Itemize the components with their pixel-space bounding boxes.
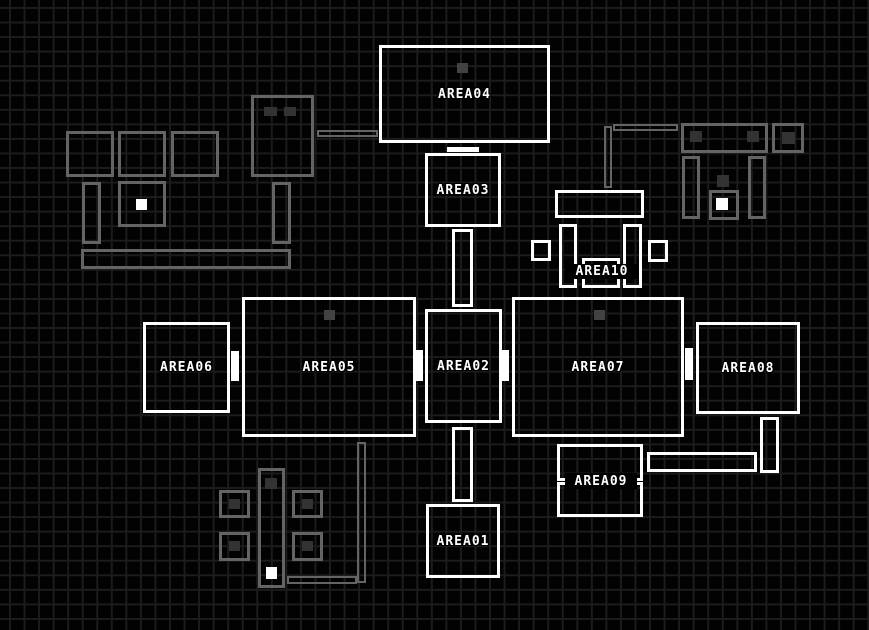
furniture-table: [118, 131, 166, 177]
door-area06-area05: [231, 351, 239, 381]
area10-side-table-left: [531, 240, 551, 261]
furniture-counter: [81, 249, 291, 269]
room-label-area04: AREA04: [438, 87, 491, 102]
room-label-area06: AREA06: [160, 360, 213, 375]
room-area01[interactable]: AREA01: [426, 504, 500, 578]
room-label-area05: AREA05: [303, 360, 356, 375]
furniture-chair: [219, 532, 250, 561]
room-area06[interactable]: AREA06: [143, 322, 230, 413]
prop-marker-icon: [690, 131, 702, 142]
hallway-area08-south: [760, 417, 779, 473]
prop-marker-icon: [717, 175, 729, 187]
room-label-area02: AREA02: [437, 359, 490, 374]
furniture-bench-right: [272, 182, 291, 244]
room-label-area01: AREA01: [437, 534, 490, 549]
camera-marker-icon: [457, 63, 468, 73]
wall-segment-horizontal: [287, 576, 357, 584]
room-area03[interactable]: AREA03: [425, 153, 501, 227]
prop-marker-icon: [229, 541, 240, 551]
furniture-table: [66, 131, 114, 177]
furniture-long-table: [258, 468, 285, 588]
wall-connector-right: [613, 124, 678, 131]
furniture-cabinet-small: [772, 123, 804, 153]
furniture-chair: [292, 532, 323, 561]
room-area05[interactable]: AREA05: [242, 297, 416, 437]
highlight-dot-icon: [266, 567, 277, 579]
room-area07[interactable]: AREA07: [512, 297, 684, 437]
furniture-counter-long: [681, 123, 768, 153]
area10-stage[interactable]: [555, 190, 644, 218]
door-area07-area08: [685, 348, 693, 380]
prop-marker-icon: [265, 478, 277, 489]
highlight-dot-icon: [136, 199, 147, 210]
room-label-area10: AREA10: [576, 264, 629, 279]
prop-marker-icon: [747, 131, 759, 142]
furniture-shelf-left: [682, 156, 700, 219]
prop-marker-icon: [284, 107, 296, 116]
prop-marker-icon: [782, 132, 795, 144]
highlight-dot-icon: [716, 198, 728, 210]
prop-marker-icon: [229, 499, 240, 509]
room-label-area09-box[interactable]: AREA09: [565, 473, 637, 489]
wall-connector-left: [317, 130, 378, 137]
door-area02-area07: [502, 350, 509, 381]
room-label-area08: AREA08: [722, 361, 775, 376]
furniture-table-highlight: [709, 190, 739, 220]
room-area04[interactable]: AREA04: [379, 45, 550, 143]
wall-connector-right-vertical: [604, 126, 612, 188]
hallway-area02-area01: [452, 427, 473, 502]
camera-marker-icon: [324, 310, 335, 320]
door-area05-area02: [415, 350, 423, 381]
furniture-shelf-right: [748, 156, 766, 219]
room-area02[interactable]: AREA02: [425, 309, 502, 423]
area10-side-table-right: [648, 240, 668, 262]
furniture-table-highlight: [118, 181, 166, 227]
door-area04-area03: [447, 147, 479, 152]
camera-marker-icon: [594, 310, 605, 320]
furniture-cabinet: [251, 95, 314, 177]
room-label-area10-box[interactable]: AREA10: [565, 264, 639, 279]
furniture-chair: [292, 490, 323, 518]
hallway-area03-area02: [452, 229, 473, 307]
furniture-table: [171, 131, 219, 177]
room-label-area03: AREA03: [437, 183, 490, 198]
hallway-area09-east: [647, 452, 757, 472]
prop-marker-icon: [302, 499, 313, 509]
prop-marker-icon: [264, 107, 277, 116]
furniture-chair: [219, 490, 250, 518]
prop-marker-icon: [302, 541, 313, 551]
game-map: AREA04 AREA03 AREA02 AREA01 AREA05 AREA0…: [0, 0, 869, 630]
room-area08[interactable]: AREA08: [696, 322, 800, 414]
wall-segment-vertical: [357, 442, 366, 583]
room-label-area07: AREA07: [572, 360, 625, 375]
furniture-bench-left: [82, 182, 101, 244]
room-label-area09: AREA09: [575, 474, 628, 489]
